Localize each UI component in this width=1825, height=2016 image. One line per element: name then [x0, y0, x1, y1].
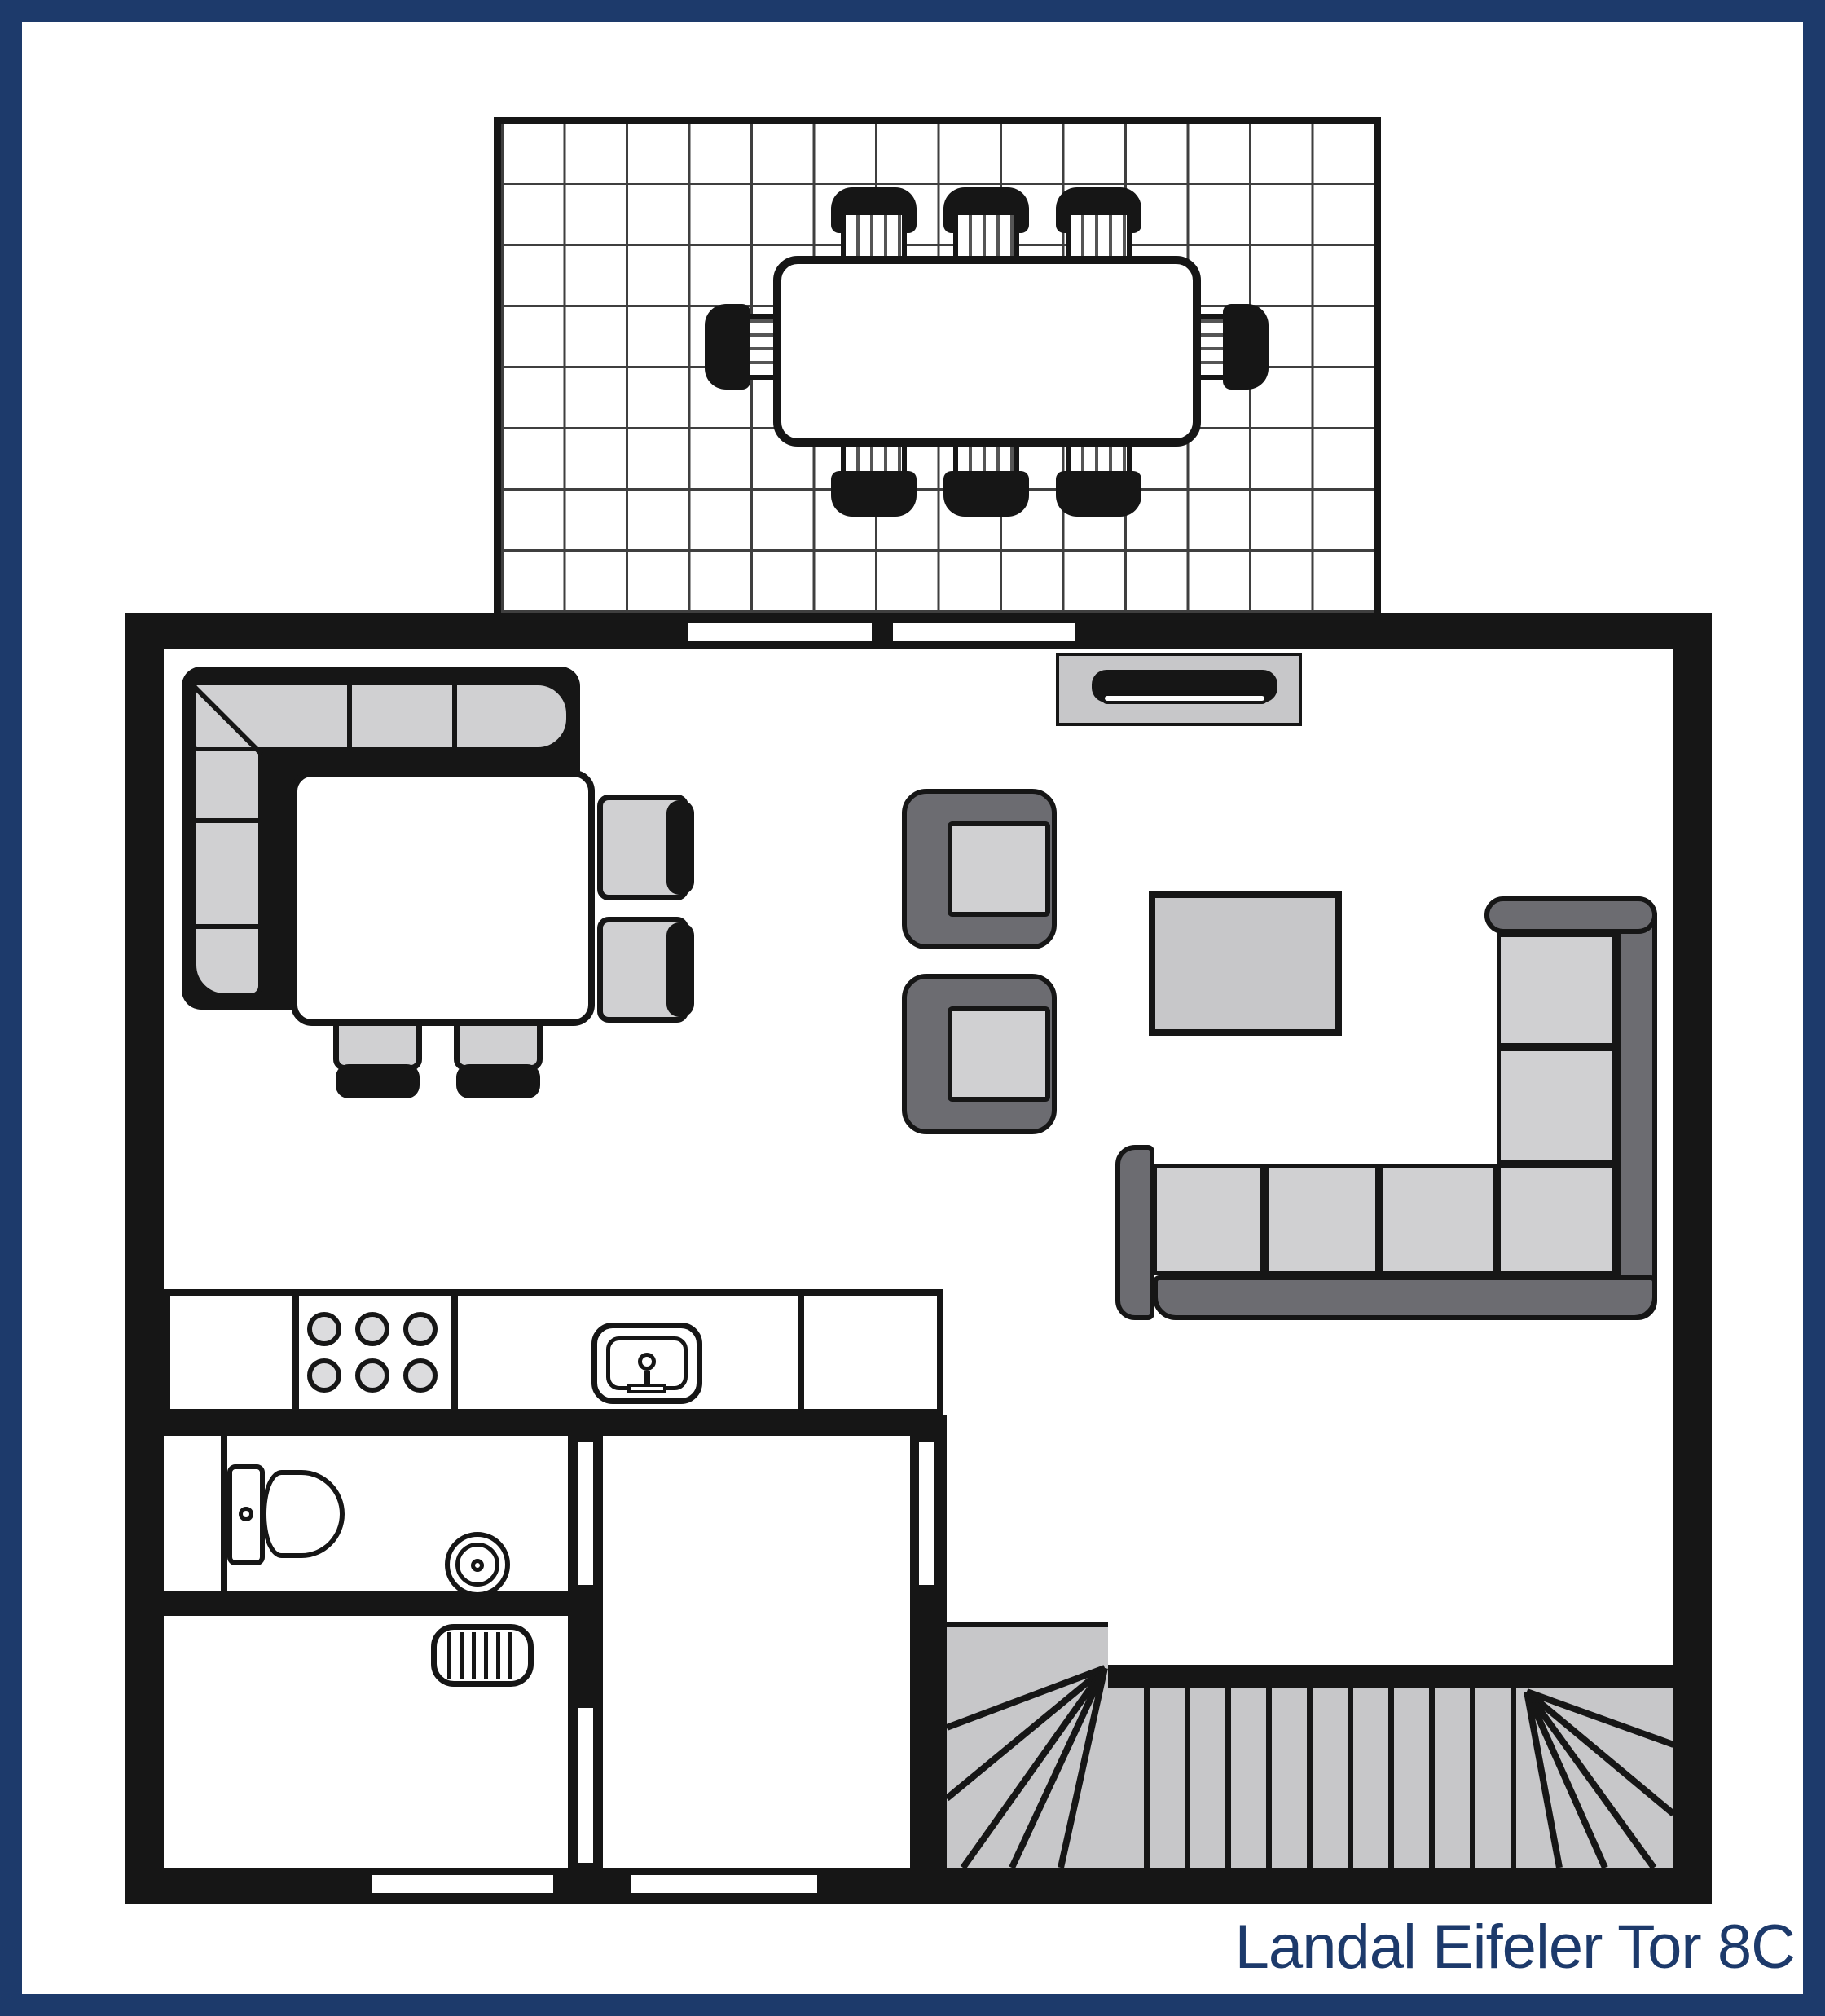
armchair-1-seat	[948, 821, 1050, 917]
stair-landing	[947, 1627, 1108, 1665]
dining-chair-backrest	[336, 1064, 420, 1098]
washbasin-drain	[471, 1559, 484, 1572]
stove-burner	[355, 1358, 389, 1393]
sofa-seat-cushion	[1264, 1164, 1379, 1275]
sofa-seat-cushion	[1153, 1164, 1264, 1275]
sofa-left-armrest	[1115, 1145, 1154, 1320]
floor-plan-page: Landal Eifeler Tor 8C	[0, 0, 1825, 2016]
bench-cushion-divider	[347, 681, 352, 751]
kitchen-wall	[164, 1415, 943, 1436]
toilet-bowl	[262, 1470, 345, 1558]
hall-door	[919, 1442, 934, 1585]
tv-screen	[1102, 693, 1268, 704]
armchair-2-seat	[948, 1006, 1050, 1102]
front-door	[631, 1875, 817, 1893]
faucet-icon	[638, 1353, 656, 1371]
bench-cushion-divider	[192, 818, 262, 823]
outdoor-chair-top-2	[953, 210, 1019, 262]
bench-cushion-divider	[192, 924, 262, 929]
dining-table	[291, 770, 595, 1026]
counter-divider	[451, 1289, 458, 1415]
back-door	[372, 1875, 553, 1893]
stove-burner	[403, 1358, 438, 1393]
outdoor-chair-back	[943, 471, 1029, 517]
outdoor-chair-back	[1223, 304, 1269, 390]
sofa-bottom-backrest	[1153, 1275, 1657, 1320]
kitchen-counter	[164, 1289, 943, 1415]
sofa-top-armrest	[1484, 896, 1657, 934]
toilet-partition	[221, 1436, 227, 1591]
caption-title: Landal Eifeler Tor 8C	[1235, 1917, 1795, 1979]
outdoor-chair-top-3	[1066, 210, 1132, 262]
sofa-seat-cushion	[1497, 933, 1616, 1047]
outdoor-chair-top-1	[841, 210, 907, 262]
sofa-seat-cushion	[1379, 1164, 1497, 1275]
sink-base	[627, 1384, 666, 1393]
bench-cushion-divider	[452, 681, 457, 751]
dining-chair-backrest	[666, 800, 694, 895]
sofa-seat-cushion	[1497, 1047, 1616, 1164]
sofa-right-backrest	[1616, 896, 1657, 1320]
landing-edge	[947, 1622, 1108, 1627]
dining-chair-backrest	[666, 922, 694, 1017]
outdoor-chair-back	[831, 471, 917, 517]
radiator-fins	[447, 1632, 517, 1679]
outdoor-chair-back	[1056, 471, 1141, 517]
toilet-flush-button	[239, 1507, 253, 1521]
coffee-table	[1149, 891, 1342, 1036]
stove-burner	[355, 1312, 389, 1346]
bathroom-wall	[164, 1591, 568, 1616]
stove-burner	[307, 1312, 341, 1346]
outdoor-dining-table	[773, 256, 1201, 447]
terrace-door-left	[688, 623, 872, 641]
staircase	[947, 1622, 1673, 1868]
terrace-door-right	[893, 623, 1075, 641]
storage-door	[578, 1708, 593, 1863]
bathroom-door	[578, 1442, 593, 1585]
stair-wall	[1108, 1665, 1673, 1688]
sofa-corner-cushion	[1497, 1164, 1616, 1275]
counter-divider	[292, 1289, 299, 1415]
stove-burner	[307, 1358, 341, 1393]
counter-divider	[798, 1289, 804, 1415]
stove-burner	[403, 1312, 438, 1346]
dining-chair-backrest	[456, 1064, 540, 1098]
outdoor-chair-back	[705, 304, 750, 390]
